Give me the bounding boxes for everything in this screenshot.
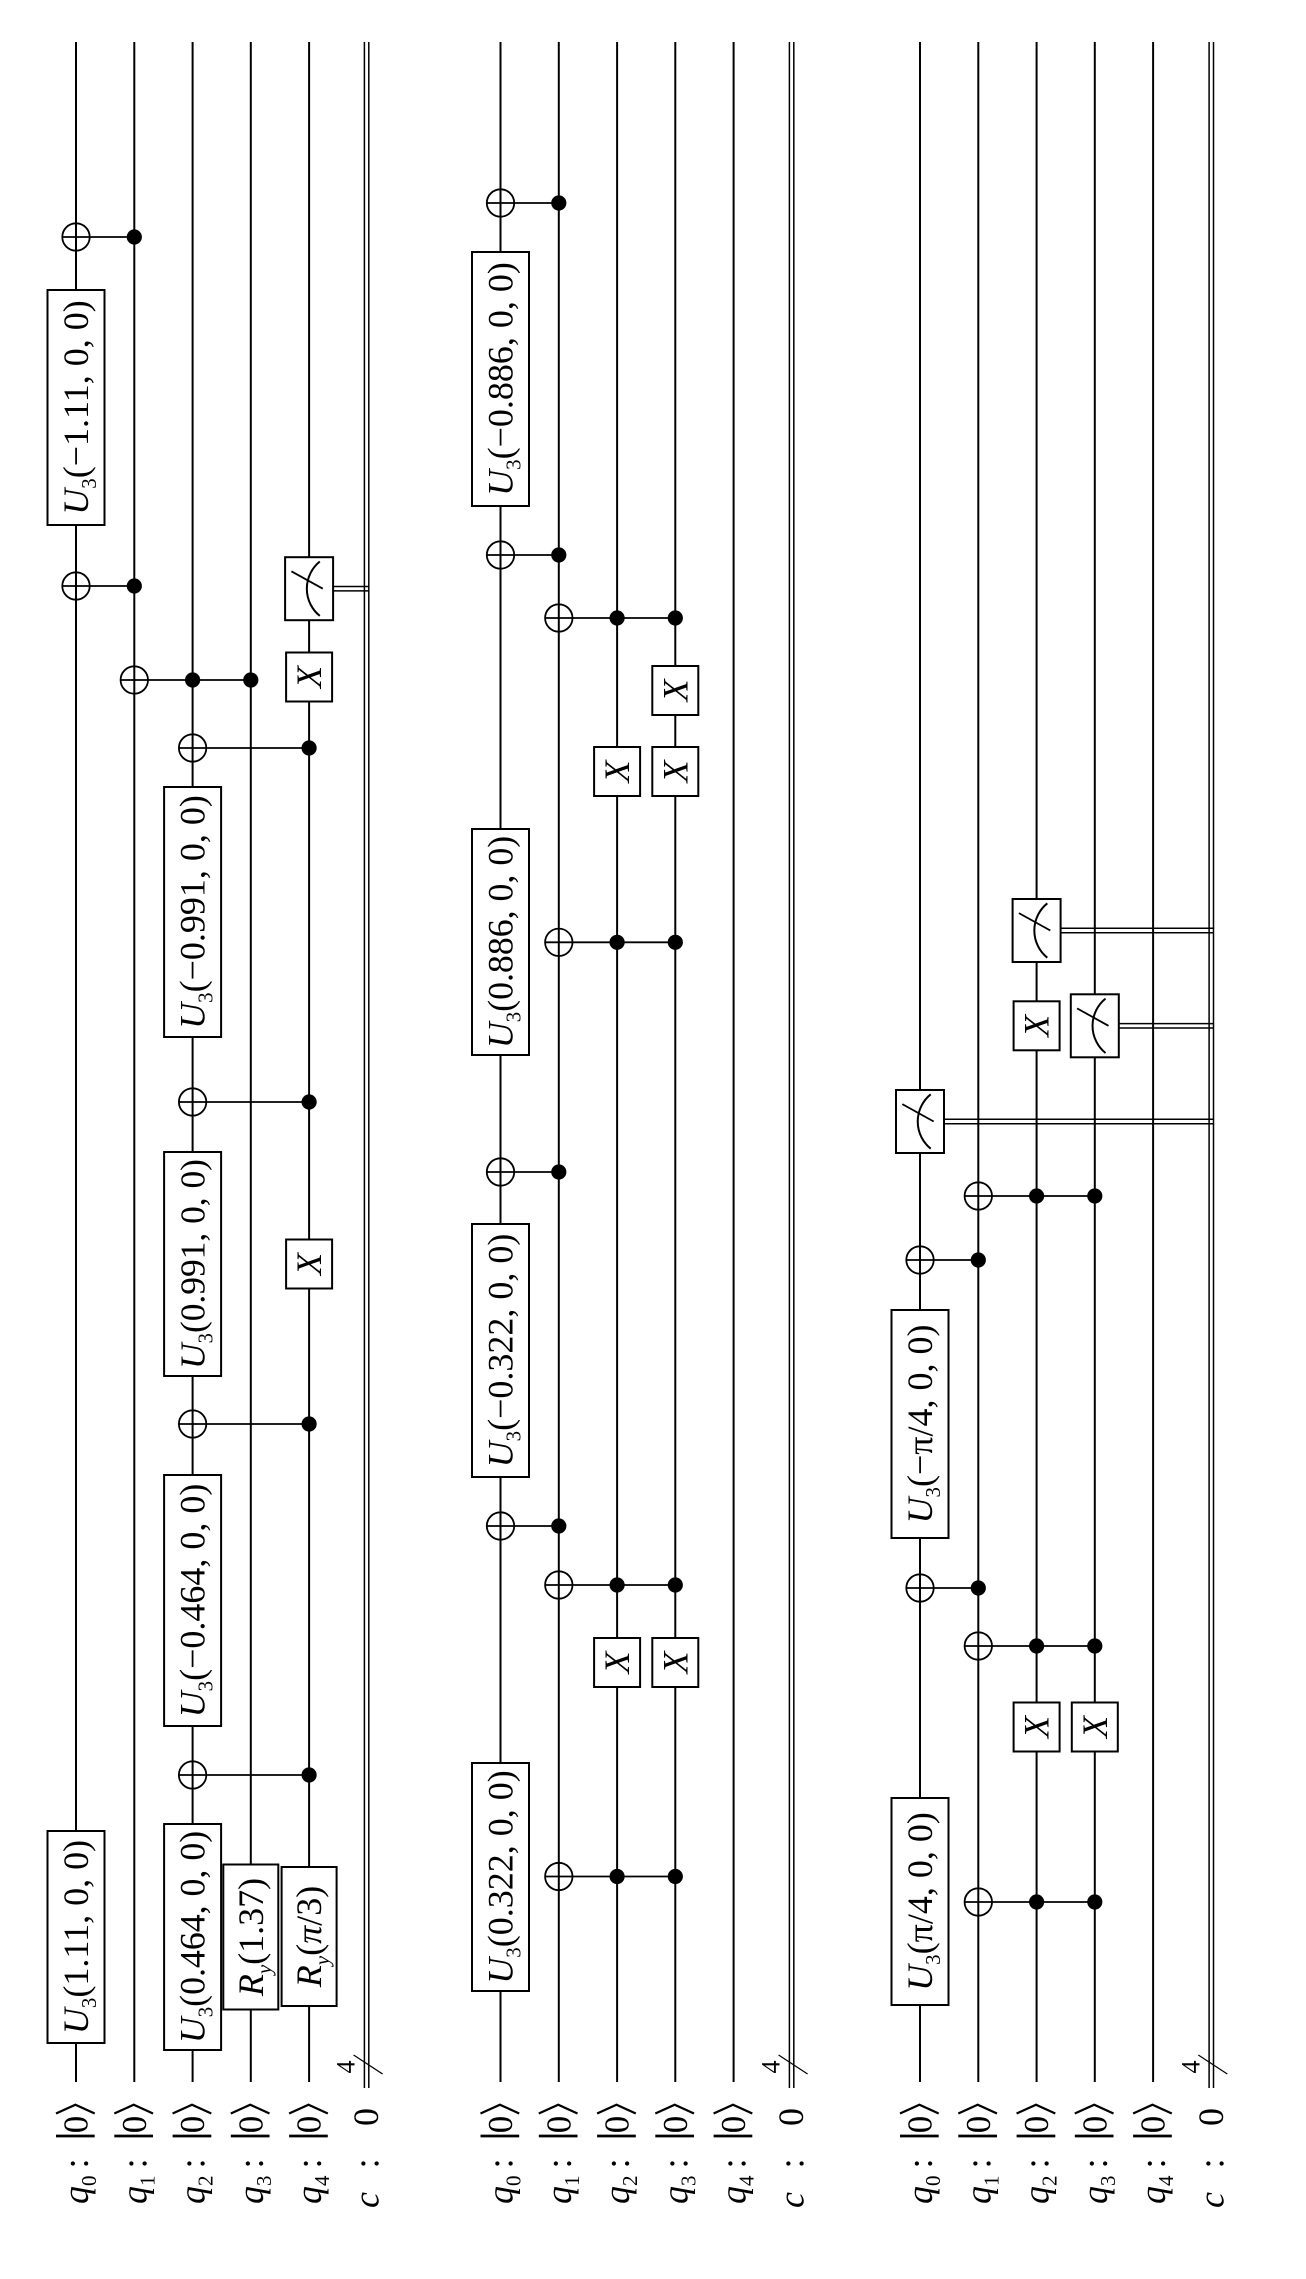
svg-text::: : <box>958 2158 998 2168</box>
svg-text:X: X <box>289 1251 329 1277</box>
svg-text:q3: q3 <box>1075 2176 1120 2205</box>
svg-text:0: 0 <box>57 2116 96 2134</box>
svg-text::: : <box>597 2158 637 2168</box>
svg-text::: : <box>1191 2158 1231 2168</box>
svg-text:0: 0 <box>173 2116 212 2134</box>
svg-text::: : <box>289 2158 329 2168</box>
svg-text:4: 4 <box>1176 2061 1205 2074</box>
svg-text:X: X <box>597 759 637 785</box>
svg-text::: : <box>714 2158 754 2168</box>
svg-text:0: 0 <box>901 2116 940 2134</box>
svg-text::: : <box>481 2158 521 2168</box>
svg-text::: : <box>539 2158 579 2168</box>
svg-text::: : <box>655 2158 695 2168</box>
svg-text:X: X <box>655 1650 695 1676</box>
svg-text:q0: q0 <box>56 2176 101 2205</box>
svg-text:q1: q1 <box>539 2176 584 2205</box>
svg-text:0: 0 <box>115 2116 154 2134</box>
svg-text:q1: q1 <box>958 2176 1003 2205</box>
svg-text:q2: q2 <box>597 2176 642 2205</box>
svg-text:c: c <box>772 2192 812 2208</box>
svg-text::: : <box>1075 2158 1115 2168</box>
svg-text:X: X <box>597 1650 637 1676</box>
svg-text:0: 0 <box>231 2116 270 2134</box>
svg-text:0: 0 <box>771 2108 811 2126</box>
svg-text::: : <box>900 2158 940 2168</box>
svg-text::: : <box>231 2158 271 2168</box>
svg-text:4: 4 <box>757 2061 786 2074</box>
svg-text:X: X <box>1075 1714 1115 1740</box>
svg-text:q3: q3 <box>231 2176 276 2205</box>
svg-text::: : <box>772 2158 812 2168</box>
svg-text:0: 0 <box>656 2116 695 2134</box>
svg-text:q4: q4 <box>714 2175 759 2204</box>
svg-text:X: X <box>655 759 695 785</box>
svg-text:X: X <box>1017 1714 1057 1740</box>
svg-text:X: X <box>655 678 695 704</box>
svg-text:q0: q0 <box>481 2176 526 2205</box>
svg-text:q2: q2 <box>1017 2176 1062 2205</box>
svg-text:q0: q0 <box>900 2176 945 2205</box>
svg-text:X: X <box>1017 1013 1057 1039</box>
svg-text::: : <box>1017 2158 1057 2168</box>
svg-text::: : <box>1133 2158 1173 2168</box>
svg-text::: : <box>56 2158 96 2168</box>
svg-text:0: 0 <box>539 2116 578 2134</box>
svg-text:c: c <box>347 2192 387 2208</box>
svg-text:X: X <box>289 664 329 690</box>
svg-text:q4: q4 <box>1133 2175 1178 2204</box>
svg-text:0: 0 <box>1134 2116 1173 2134</box>
svg-text:0: 0 <box>1191 2108 1231 2126</box>
svg-text:c: c <box>1191 2192 1231 2208</box>
svg-text::: : <box>114 2158 154 2168</box>
svg-text:0: 0 <box>1017 2116 1056 2134</box>
svg-text::: : <box>347 2158 387 2168</box>
svg-text:q1: q1 <box>114 2176 159 2205</box>
svg-text:Ry(π/3): Ry(π/3) <box>289 1886 334 1988</box>
svg-text:4: 4 <box>332 2061 361 2074</box>
svg-text:0: 0 <box>346 2108 386 2126</box>
svg-text:q4: q4 <box>289 2175 334 2204</box>
svg-text:0: 0 <box>714 2116 753 2134</box>
svg-text:0: 0 <box>959 2116 998 2134</box>
svg-text:Ry(1.37): Ry(1.37) <box>231 1878 276 1997</box>
svg-text::: : <box>173 2158 213 2168</box>
svg-text:0: 0 <box>1075 2116 1114 2134</box>
svg-text:0: 0 <box>290 2116 329 2134</box>
svg-text:0: 0 <box>598 2116 637 2134</box>
svg-text:q2: q2 <box>173 2176 218 2205</box>
svg-text:0: 0 <box>481 2116 520 2134</box>
svg-text:q3: q3 <box>655 2176 700 2205</box>
